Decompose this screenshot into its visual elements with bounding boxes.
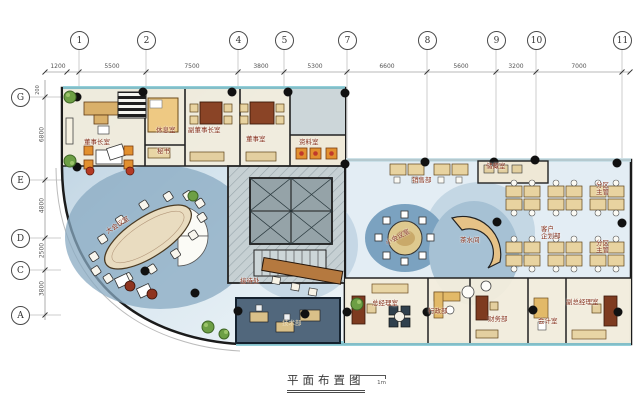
grid-axis-A: A (11, 306, 30, 325)
grid-axis-C: C (11, 261, 30, 280)
dim-top-5: 5300 (307, 63, 322, 70)
room-label-secretary: 秘书 (157, 148, 170, 155)
grid-axis-10: 10 (527, 31, 546, 50)
room-label-sales: 销售部 (412, 177, 432, 184)
dim-top-2: 5500 (104, 63, 119, 70)
room-label-archive: 资料室 (299, 139, 319, 146)
room-label-admin: 行政部 (428, 308, 448, 315)
scale-bar-line (356, 375, 386, 379)
room-label-lounge: 休息室 (156, 127, 176, 134)
room-label-reception: 接待处 (240, 278, 260, 285)
grid-axis-11: 11 (613, 31, 632, 50)
room-label-zone-manager-2: 分区 主管 (596, 240, 609, 255)
room-label-storage: 储藏室 (486, 163, 506, 170)
floor-plan-sheet: 1 2 4 5 7 8 9 10 11 1200 5500 7500 3800 … (0, 0, 640, 409)
dim-top-9: 7000 (571, 63, 586, 70)
scale-zero-label: 0 (356, 380, 360, 386)
room-label-chairman: 董事长室 (84, 139, 110, 146)
grid-axis-4: 4 (229, 31, 248, 50)
dim-top-8: 3200 (508, 63, 523, 70)
room-label-client-planning: 客户 企划部 (541, 226, 561, 241)
dim-left-top: 200 (35, 85, 41, 95)
room-label-zone-manager-1: 分区 主管 (596, 182, 609, 197)
dim-left-1: 6800 (39, 124, 46, 146)
room-label-gm: 总经理室 (372, 300, 398, 307)
grid-axis-7: 7 (338, 31, 357, 50)
grid-axis-5: 5 (275, 31, 294, 50)
grid-axis-D: D (11, 229, 30, 248)
room-label-vice-chairman: 副董事长室 (188, 127, 221, 134)
dim-left-4: 3800 (39, 278, 46, 300)
scale-bar: 0 1m (356, 375, 386, 386)
room-label-tea: 茶水间 (460, 237, 480, 244)
dim-top-7: 5600 (453, 63, 468, 70)
room-label-tech: 技术部 (282, 320, 302, 327)
room-label-accounting: 会计室 (538, 318, 558, 325)
dim-top-3: 7500 (184, 63, 199, 70)
grid-axis-1: 1 (70, 31, 89, 50)
room-label-deputy-gm: 副总经理室 (566, 299, 599, 306)
room-label-director: 董事室 (246, 136, 266, 143)
scale-one-label: 1m (377, 380, 386, 386)
grid-axis-G: G (11, 88, 30, 107)
dim-left-3: 2500 (39, 240, 46, 262)
floor-plan-drawing (0, 0, 640, 409)
grid-axis-8: 8 (418, 31, 437, 50)
room-label-finance: 财务部 (488, 316, 508, 323)
grid-axis-E: E (11, 171, 30, 190)
dim-top-1: 1200 (50, 63, 65, 70)
grid-axis-2: 2 (137, 31, 156, 50)
grid-axis-9: 9 (487, 31, 506, 50)
dim-left-2: 4800 (39, 195, 46, 217)
dim-top-4: 3800 (253, 63, 268, 70)
drawing-title: 平面布置图 (287, 372, 365, 393)
dim-top-6: 6600 (379, 63, 394, 70)
